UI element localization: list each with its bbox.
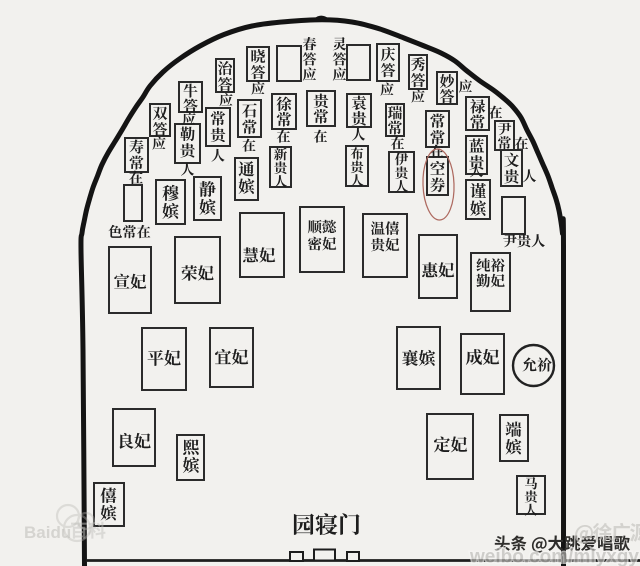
svg-text:weibo.com/mlyxgy: weibo.com/mlyxgy (469, 547, 639, 566)
svg-text:Baidu: Baidu (24, 523, 71, 542)
